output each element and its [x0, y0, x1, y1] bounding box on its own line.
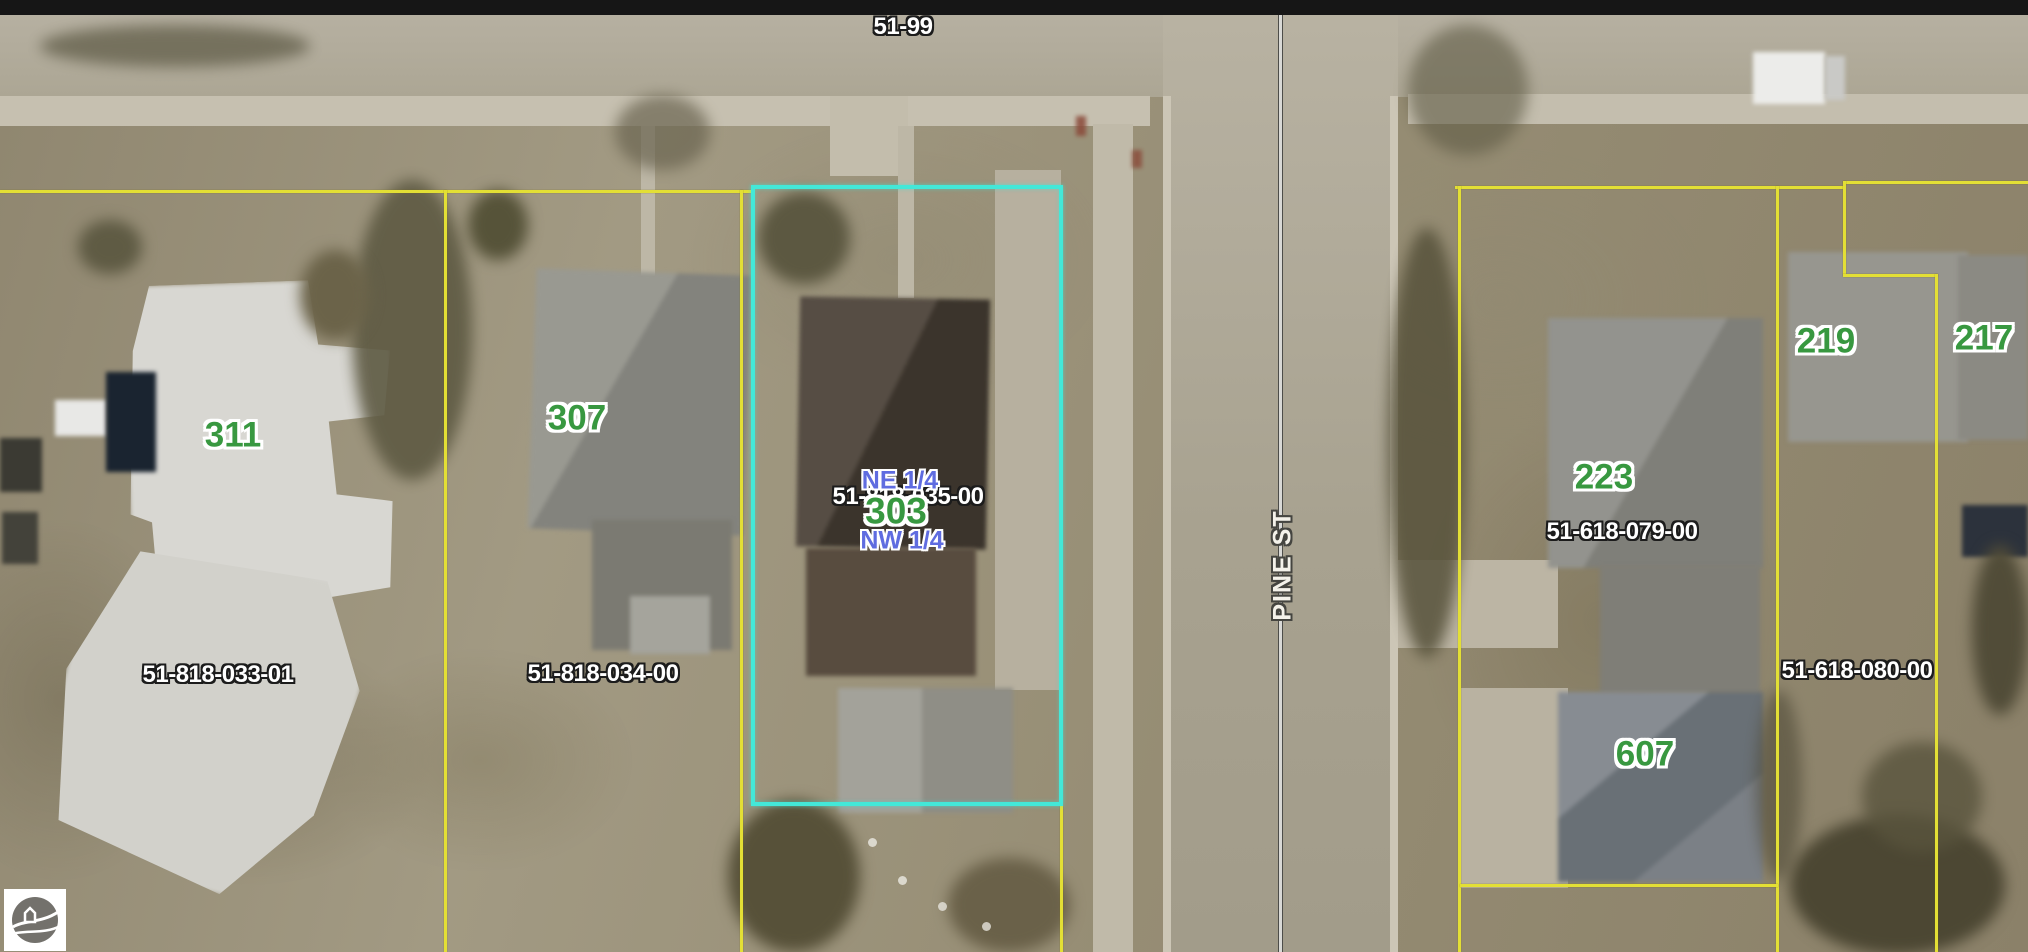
dark-vehicle-left — [106, 372, 156, 472]
tree-bottom-right-1 — [1790, 815, 2005, 952]
top-bar — [0, 0, 2028, 15]
top-sidewalk-right — [1408, 94, 2028, 124]
building-311-wing — [22, 525, 383, 915]
address-label-311: 311 — [205, 418, 261, 453]
address-label-607: 607 — [1616, 737, 1674, 772]
map-viewport[interactable]: 51-99 51-818-033-01 51-818-034-00 51-818… — [0, 0, 2028, 952]
stepping-stone-2 — [898, 876, 907, 885]
tree-right-edge — [1972, 545, 2028, 715]
parcel-label-079: 51-618-079-00 — [1547, 520, 1698, 544]
street-centerline — [1278, 15, 1283, 952]
driveway-223 — [1398, 560, 1558, 648]
tree-shadow-top-right — [1408, 25, 1528, 155]
quarter-label-nw: NW 1/4 — [860, 529, 943, 554]
house-223-wing — [1600, 565, 1760, 693]
tree-bottom-center-2 — [948, 858, 1070, 952]
section-label: 51-99 — [874, 15, 933, 39]
tree-2 — [300, 250, 370, 340]
house-307-deck — [630, 596, 710, 654]
top-sidewalk-left — [0, 96, 1150, 126]
hedge-top-left — [40, 25, 310, 67]
address-label-219: 219 — [1797, 324, 1855, 359]
sidewalk-west-of-street — [1093, 124, 1133, 952]
dark-vehicle-right-edge — [1962, 505, 2028, 557]
building-311-main — [123, 278, 403, 717]
marker-red-1 — [1076, 116, 1086, 136]
dark-object-left-edge-2 — [2, 512, 38, 564]
parcel-label-034: 51-818-034-00 — [528, 662, 679, 686]
white-truck-cab — [1825, 56, 1845, 100]
dark-object-left-edge-1 — [0, 438, 42, 492]
address-label-303: 303 — [865, 493, 927, 530]
white-truck — [1753, 52, 1825, 104]
parcel-label-033: 51-818-033-01 — [143, 663, 294, 687]
top-road — [0, 15, 2028, 97]
parcel-label-080: 51-618-080-00 — [1782, 659, 1933, 683]
stepping-stone-3 — [938, 902, 947, 911]
parcel-line-034-035 — [740, 190, 743, 952]
address-label-223: 223 — [1575, 460, 1633, 495]
front-walk-307 — [641, 126, 655, 276]
parcel-line-033-034 — [444, 190, 447, 952]
parcel-line-079-west — [1458, 186, 1461, 952]
street-name-label: PINE ST — [1271, 509, 1296, 620]
parcel-line-079-south — [1460, 884, 1778, 887]
street-curb-left — [1163, 96, 1171, 952]
tree-bottom-center-1 — [728, 800, 860, 952]
parcel-notch-horizontal — [1843, 274, 1938, 277]
pad-607 — [1460, 688, 1568, 888]
tree-3 — [468, 190, 528, 260]
tree-shadow-top — [615, 95, 710, 170]
house-307-rear — [592, 520, 732, 650]
parcel-line-east-top-2 — [1843, 181, 2028, 184]
treeline-street-east — [1388, 228, 1466, 658]
stepping-stone-1 — [868, 838, 877, 847]
tree-1 — [352, 180, 472, 480]
tree-5 — [78, 220, 142, 274]
address-label-217: 217 — [1955, 321, 2013, 356]
driveway-apron-303 — [830, 96, 908, 176]
tree-607-side — [1756, 690, 1802, 880]
parcel-notch-vertical — [1843, 181, 1846, 276]
stepping-stone-4 — [982, 922, 991, 931]
marker-red-2 — [1132, 150, 1142, 168]
parcel-line-east-top-1 — [1455, 186, 1845, 189]
parcel-line-west-top — [0, 190, 751, 193]
county-gis-logo-icon — [8, 893, 62, 947]
address-label-307: 307 — [548, 401, 606, 436]
parcel-line-035-east-lower — [1060, 806, 1063, 952]
parcel-line-219-217 — [1935, 274, 1938, 952]
parcel-line-079-080 — [1776, 186, 1779, 952]
street-curb-right — [1390, 96, 1398, 952]
building-607-roof — [1558, 692, 1763, 882]
tree-bottom-right-2 — [1862, 742, 1982, 852]
shed-white-left — [55, 400, 107, 436]
